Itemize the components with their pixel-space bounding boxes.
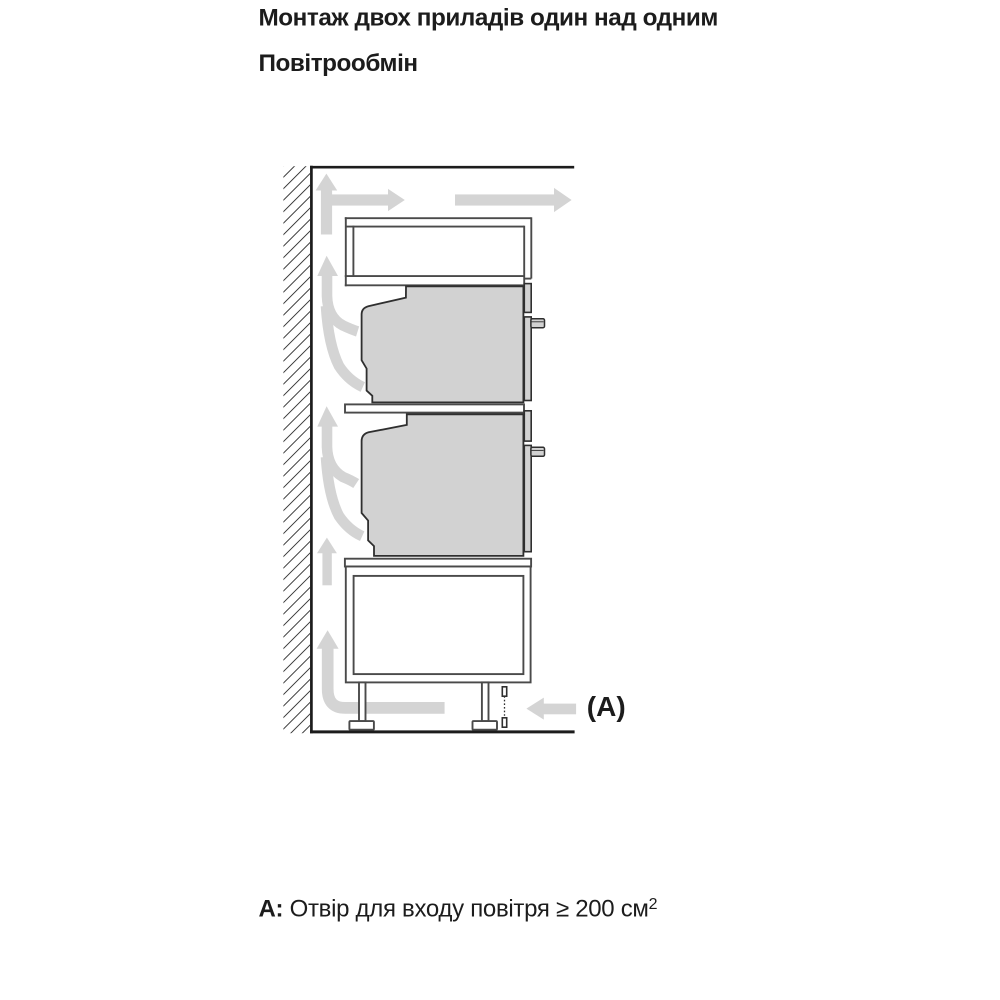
svg-text:Повітрообмін: Повітрообмін [259,50,418,77]
svg-text:A: Отвір для входу повітря ≥ 2: A: Отвір для входу повітря ≥ 200 см2 [259,896,658,923]
svg-text:Монтаж двох приладів один над: Монтаж двох приладів один над одним [259,5,718,32]
svg-text:(A): (A) [587,691,626,722]
